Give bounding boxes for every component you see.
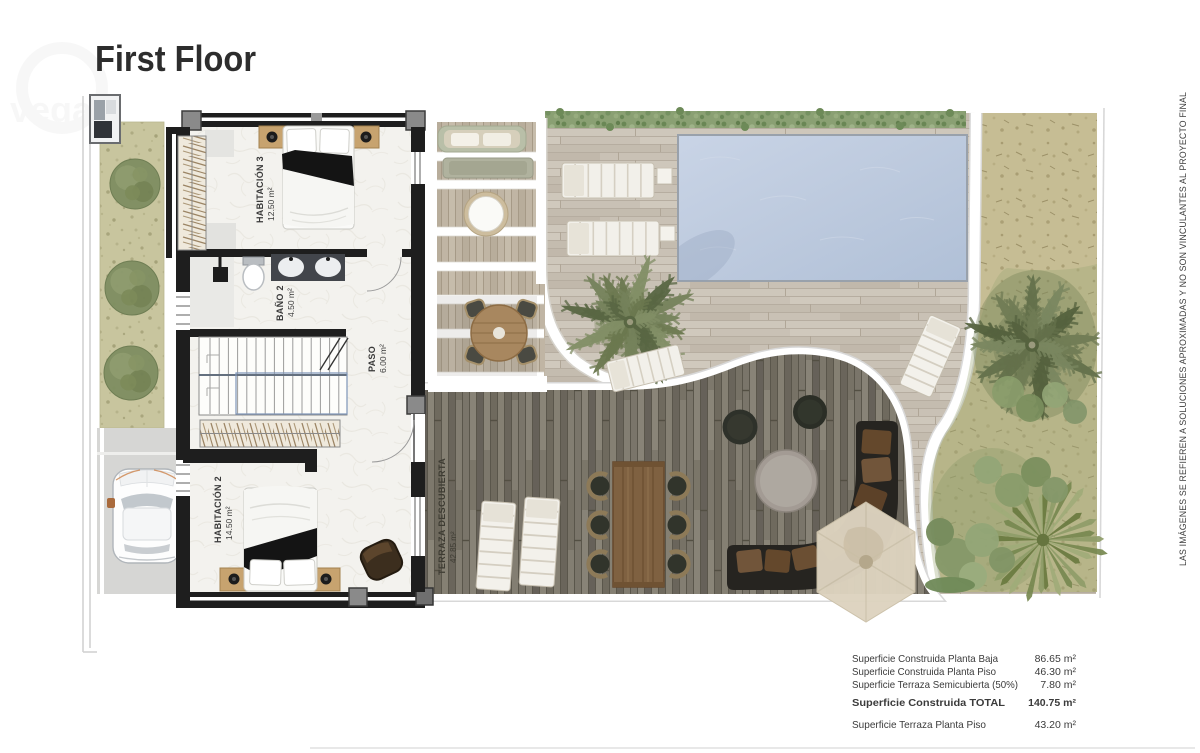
svg-text:46.30 m²: 46.30 m² — [1035, 666, 1077, 678]
svg-text:LAS IMÁGENES SE REFIEREN A SOL: LAS IMÁGENES SE REFIEREN A SOLUCIONES AP… — [1178, 92, 1189, 566]
svg-text:12.50 m²: 12.50 m² — [266, 187, 276, 221]
svg-text:Superficie Construida TOTAL: Superficie Construida TOTAL — [852, 697, 1006, 709]
svg-text:First Floor: First Floor — [95, 38, 256, 79]
svg-text:Superficie Terraza Planta Piso: Superficie Terraza Planta Piso — [852, 719, 986, 731]
svg-text:86.65 m²: 86.65 m² — [1035, 653, 1077, 665]
svg-text:14.50 m²: 14.50 m² — [224, 506, 234, 540]
svg-text:Superficie Construida Planta P: Superficie Construida Planta Piso — [852, 666, 996, 678]
svg-text:4.50 m²: 4.50 m² — [286, 288, 296, 317]
svg-text:42.85 m²: 42.85 m² — [449, 531, 458, 563]
svg-text:vega: vega — [10, 89, 93, 130]
svg-text:PASO: PASO — [367, 346, 377, 372]
svg-text:HABITACIÓN 3: HABITACIÓN 3 — [254, 156, 265, 223]
svg-text:140.75 m²: 140.75 m² — [1028, 697, 1076, 709]
svg-text:43.20 m²: 43.20 m² — [1035, 719, 1077, 731]
svg-text:7.80 m²: 7.80 m² — [1040, 679, 1076, 691]
svg-text:Superficie Terraza Semicubiert: Superficie Terraza Semicubierta (50%) — [852, 679, 1018, 691]
svg-text:BAÑO 2: BAÑO 2 — [275, 285, 285, 321]
svg-text:HABITACIÓN 2: HABITACIÓN 2 — [212, 476, 223, 543]
svg-text:6.00 m²: 6.00 m² — [378, 344, 388, 373]
svg-text:TERRAZA DESCUBIERTA: TERRAZA DESCUBIERTA — [437, 458, 447, 575]
svg-text:Superficie Construida Planta B: Superficie Construida Planta Baja — [852, 653, 998, 665]
